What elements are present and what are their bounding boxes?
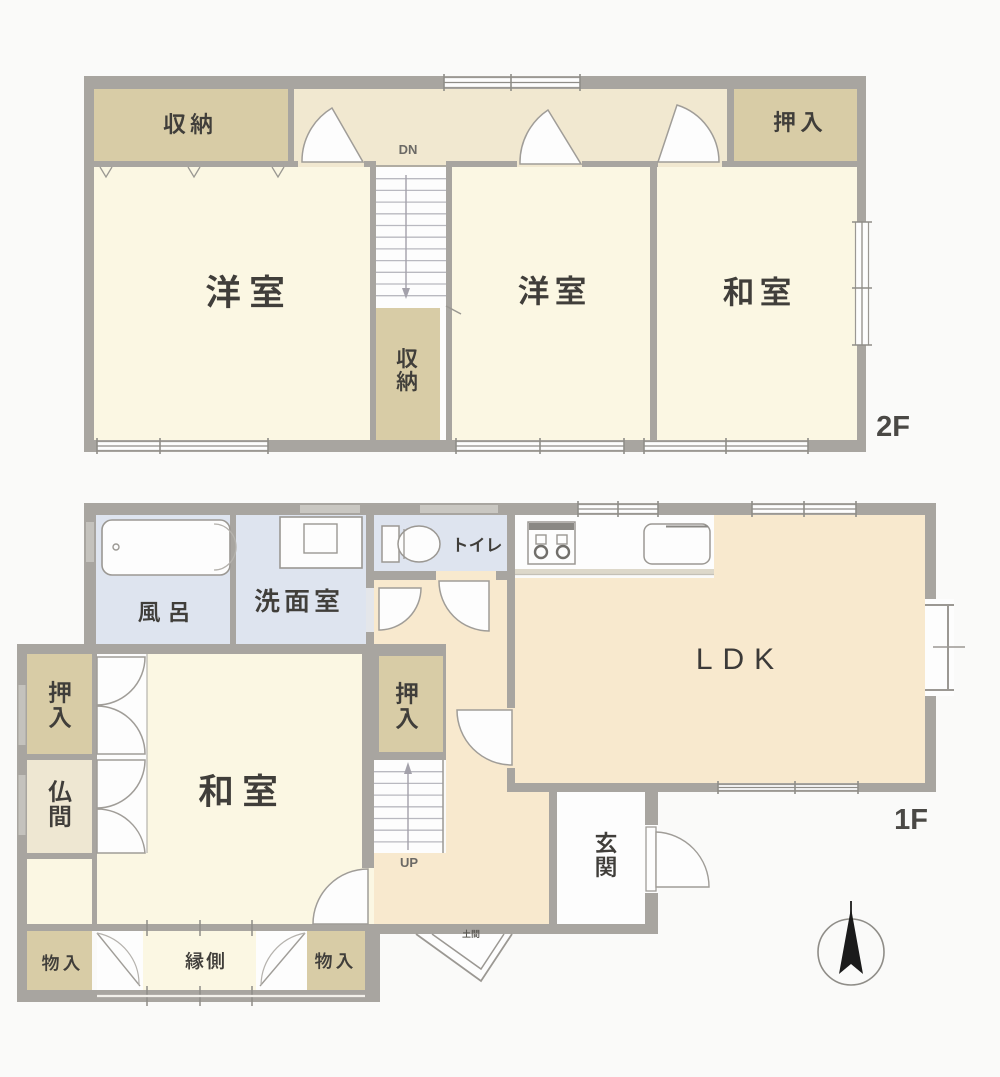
svg-text:LDK: LDK [696, 643, 784, 676]
svg-text:UP: UP [400, 855, 418, 870]
svg-text:1F: 1F [894, 804, 928, 836]
svg-text:2F: 2F [876, 411, 910, 443]
svg-text:DN: DN [399, 142, 418, 157]
